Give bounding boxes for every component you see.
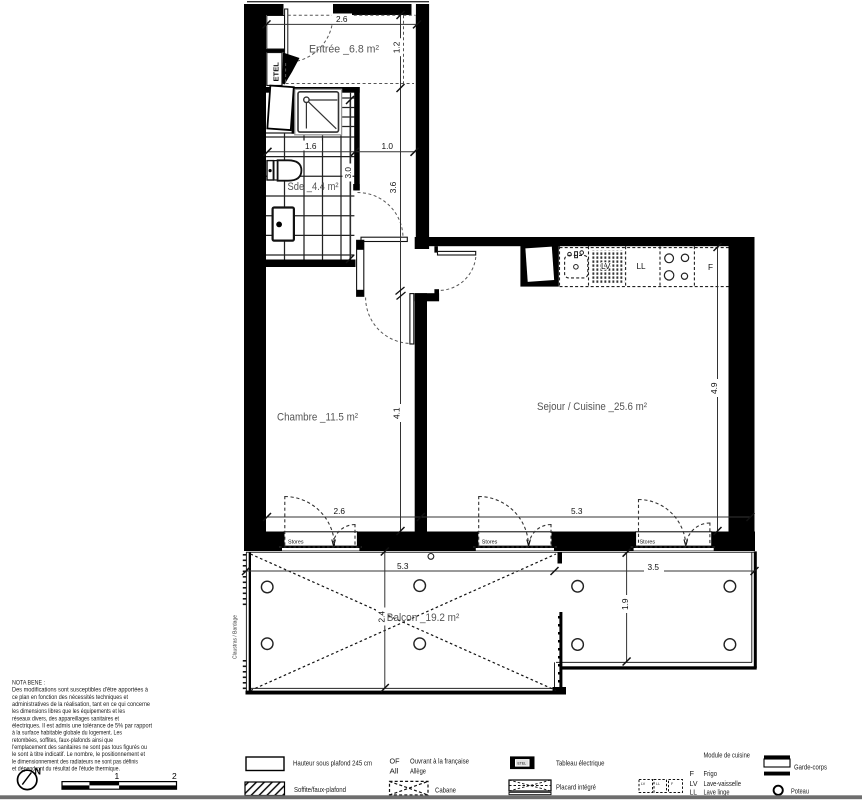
svg-text:2: 2 [172,771,177,781]
svg-text:Placard intégré: Placard intégré [556,783,596,792]
svg-text:Frigo: Frigo [704,769,718,778]
svg-text:1.9: 1.9 [620,598,630,610]
svg-text:5.3: 5.3 [397,561,409,571]
svg-text:NOTA BENE :: NOTA BENE : [12,680,45,687]
svg-text:Sde _4.4 m²: Sde _4.4 m² [288,181,339,193]
svg-text:F: F [708,263,713,272]
svg-text:retombées, soffites, faux-plaf: retombées, soffites, faux-plafonds ainsi… [12,737,113,744]
svg-text:LL: LL [656,782,660,786]
svg-text:1.6: 1.6 [305,141,317,151]
svg-text:Lave linge: Lave linge [704,788,730,797]
svg-text:Sejour / Cuisine _25.6 m²: Sejour / Cuisine _25.6 m² [537,401,647,413]
svg-text:4.1: 4.1 [392,407,402,419]
svg-text:Cabane: Cabane [435,786,456,795]
svg-text:Entrée _6.8 m²: Entrée _6.8 m² [309,44,379,56]
svg-text:2.4: 2.4 [377,611,387,623]
svg-text:l'emplacement des sanitaires n: l'emplacement des sanitaires ne sont pas… [12,744,147,751]
svg-text:réseaux divers, des appareilla: réseaux divers, des appareillages sanita… [12,715,119,722]
svg-text:Allège: Allège [410,767,426,776]
svg-text:3.5: 3.5 [648,562,660,572]
svg-text:le dimensionnement des radiate: le dimensionnement des radiateurs ne son… [12,758,138,765]
svg-text:ETEL: ETEL [272,62,281,82]
svg-text:LV: LV [601,262,611,271]
svg-text:ETEL: ETEL [518,762,527,766]
svg-text:5.3: 5.3 [571,506,583,516]
svg-text:Module de cuisine: Module de cuisine [704,751,751,760]
svg-text:Claustras / Bardage: Claustras / Bardage [233,615,239,659]
svg-text:LL: LL [637,262,647,271]
svg-text:le sont à titre indicatif. Le: le sont à titre indicatif. Le nombre, le… [12,751,145,758]
svg-text:1.2: 1.2 [392,41,402,53]
svg-text:4.9: 4.9 [709,382,719,394]
svg-text:Stores: Stores [640,540,656,546]
svg-text:3.0: 3.0 [343,167,353,179]
svg-text:1.0: 1.0 [382,141,394,151]
svg-text:Stores: Stores [288,540,304,546]
svg-text:Hauteur sous plafond 245 cm: Hauteur sous plafond 245 cm [293,759,372,768]
svg-text:électriques. Il est admis une: électriques. Il est admis une tolérance … [12,723,152,730]
svg-text:Ouvrant à la française: Ouvrant à la française [410,757,469,766]
svg-text:à la surface habitable globale: à la surface habitable globale du logeme… [12,730,122,737]
svg-text:OF: OF [390,757,400,766]
svg-text:administratives de la réalisat: administratives de la réalisation, tant … [12,701,150,708]
svg-text:Balcon _19.2 m²: Balcon _19.2 m² [387,612,460,624]
svg-text:3.6: 3.6 [388,181,398,193]
svg-text:les dimensions libres que les: les dimensions libres que les équipement… [12,708,125,715]
svg-text:ce plan en fonction des nécess: ce plan en fonction des nécessités techn… [12,694,128,701]
svg-text:LL: LL [690,788,698,797]
svg-text:2.6: 2.6 [334,506,346,516]
svg-text:Des modifications sont suscept: Des modifications sont susceptibles d'êt… [12,687,149,694]
svg-text:Soffite/faux-plafond: Soffite/faux-plafond [294,785,346,794]
svg-text:Poteau: Poteau [791,787,809,796]
svg-text:N: N [35,767,42,777]
svg-text:Chambre _11.5 m²: Chambre _11.5 m² [277,412,358,424]
svg-text:F: F [690,769,695,778]
svg-text:Garde-corps: Garde-corps [794,763,827,772]
svg-text:All: All [390,767,399,776]
svg-text:1: 1 [115,771,120,781]
svg-text:LV: LV [641,782,646,786]
svg-text:Tableau électrique: Tableau électrique [556,759,605,768]
svg-text:Stores: Stores [482,540,498,546]
svg-text:et dépendront du résultat de l: et dépendront du résultat de l'étude the… [12,766,120,773]
svg-text:2.6: 2.6 [336,14,348,24]
